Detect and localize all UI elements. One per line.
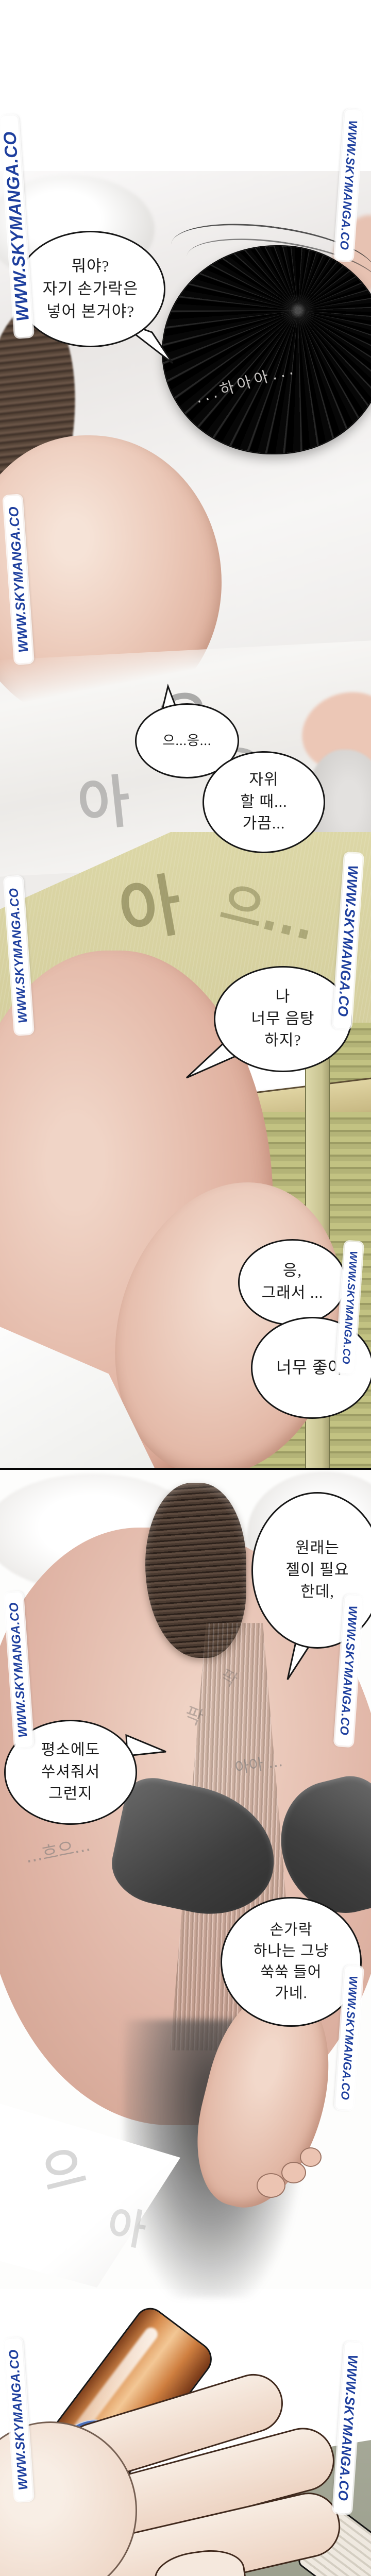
speech-bubble-3: 자위 할 때... 가끔...: [203, 751, 325, 853]
speech-bubble-4: 나 너무 음탕 하지?: [214, 966, 352, 1072]
speech-bubble-1: 뭐야? 자기 손가락은 넣어 본거야?: [15, 231, 165, 347]
webtoon-page: ...하아아... 으 응 아 아 으... 아아 ... ...흐으... 팍…: [0, 0, 371, 2576]
speech-bubble-9: 손가락 하나는 그냥 쑥쑥 들어 가네.: [221, 1897, 362, 2027]
speech-bubble-5: 응, 그래서 ...: [238, 1239, 347, 1326]
